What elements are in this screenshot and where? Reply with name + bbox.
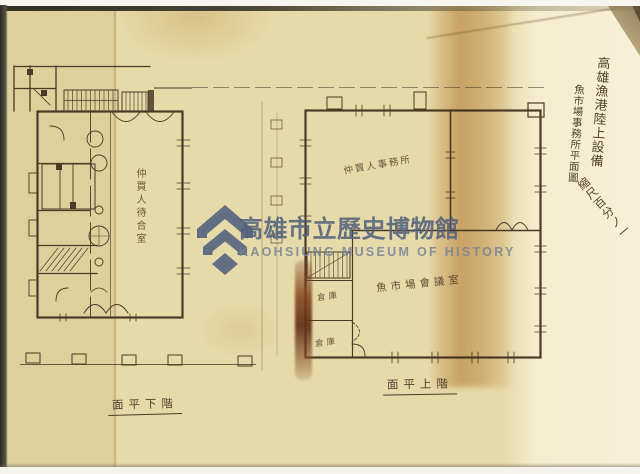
tape-stain — [295, 260, 312, 380]
caption-upper-floor-plan: 面平上階 — [383, 375, 457, 395]
watermark-cjk-text: 高雄市立歷史博物館 — [239, 209, 460, 244]
scan-edge-top-shadow — [0, 6, 640, 11]
caption-lower-floor-plan: 面平下階 — [108, 395, 182, 416]
label-hall: 仲買人待合室 — [132, 168, 147, 246]
scanned-document: 仲買人待合室 仲買人事務所 魚市場會議室 倉庫 倉庫 面平下階 面平上階 高雄漁… — [0, 0, 640, 474]
scan-edge-bottom — [0, 467, 640, 474]
stain-band-overlay — [432, 5, 510, 387]
watermark-en-text: KAOHSIUNG MUSEUM OF HISTORY — [239, 245, 516, 259]
scan-edge-left — [0, 5, 8, 474]
left-plan — [14, 66, 190, 321]
